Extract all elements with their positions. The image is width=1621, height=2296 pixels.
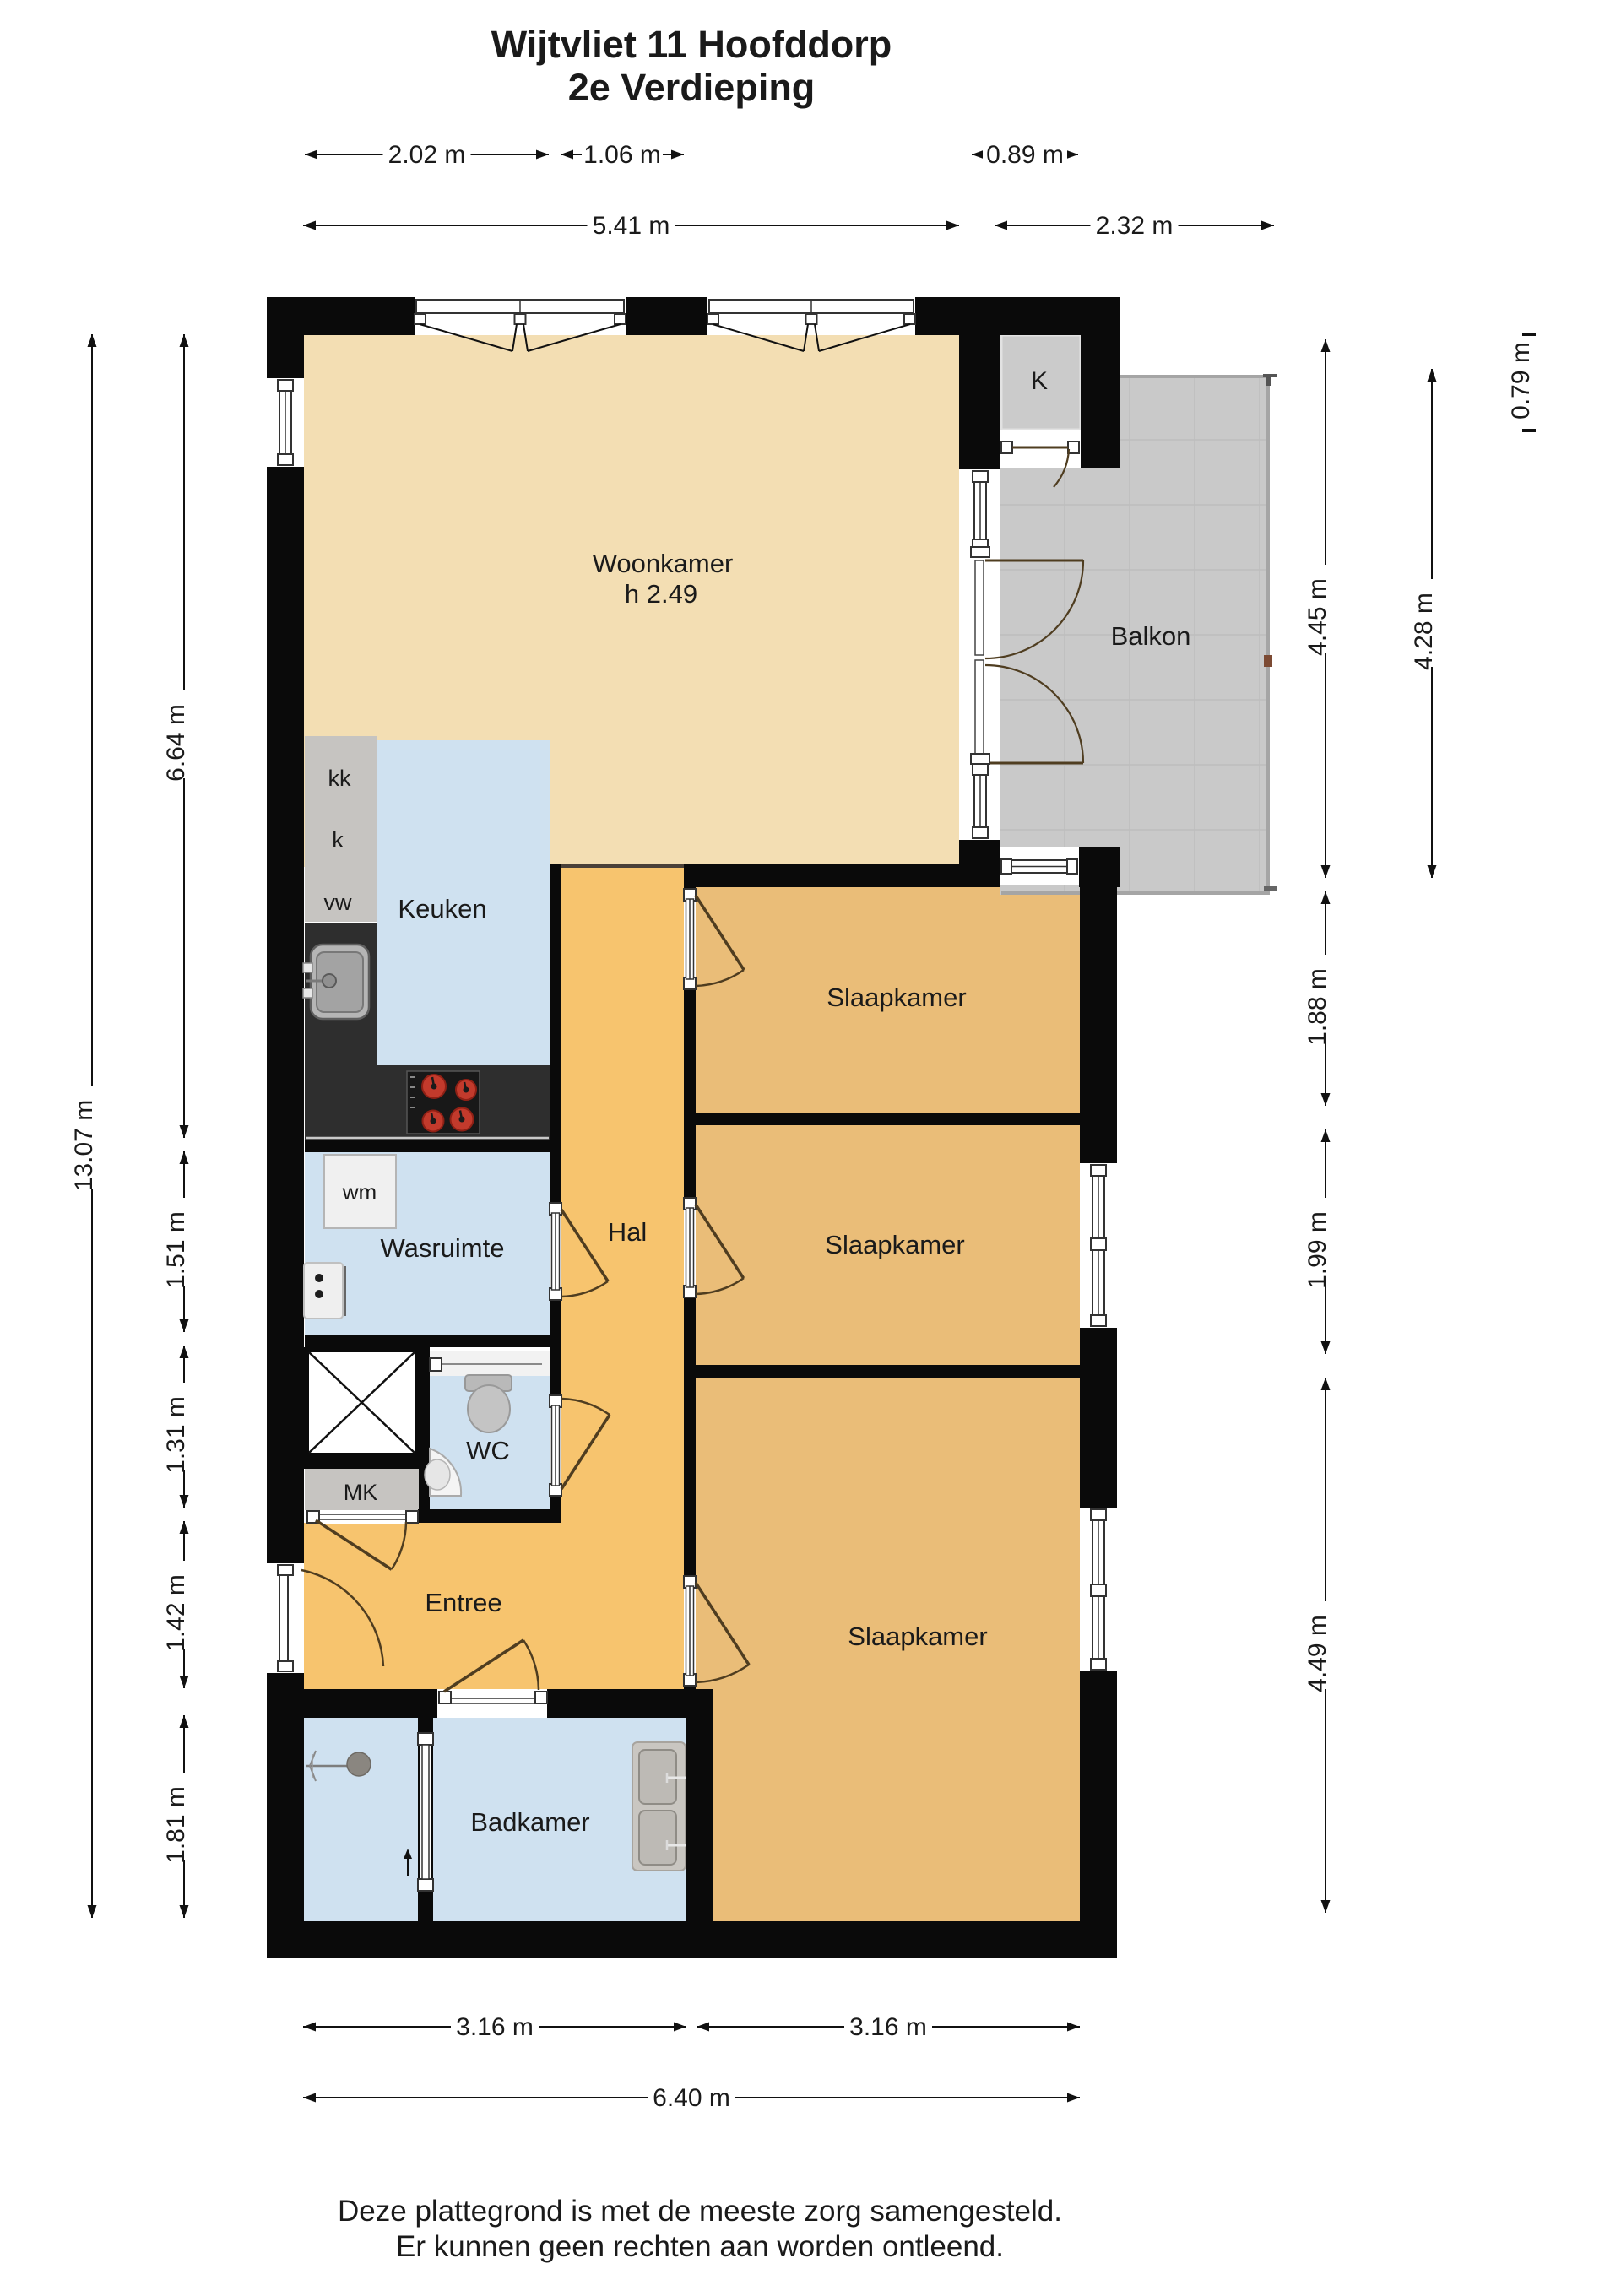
svg-text:wm: wm: [342, 1179, 377, 1205]
svg-text:0.79 m: 0.79 m: [1507, 342, 1535, 420]
svg-text:6.40 m: 6.40 m: [653, 2084, 730, 2112]
svg-text:K: K: [1031, 367, 1048, 395]
svg-text:1.81 m: 1.81 m: [162, 1786, 190, 1864]
svg-text:Woonkamer: Woonkamer: [593, 549, 734, 578]
svg-text:4.45 m: 4.45 m: [1304, 578, 1331, 656]
svg-text:4.49 m: 4.49 m: [1304, 1615, 1331, 1692]
svg-text:Badkamer: Badkamer: [470, 1807, 589, 1837]
svg-text:3.16 m: 3.16 m: [849, 2013, 927, 2041]
svg-text:Slaapkamer: Slaapkamer: [825, 1230, 964, 1259]
svg-text:vw: vw: [324, 890, 353, 915]
svg-text:1.99 m: 1.99 m: [1304, 1211, 1331, 1289]
svg-text:MK: MK: [344, 1480, 378, 1505]
svg-text:5.41 m: 5.41 m: [593, 212, 670, 240]
svg-text:1.06 m: 1.06 m: [583, 141, 661, 169]
svg-text:0.89 m: 0.89 m: [986, 141, 1064, 169]
svg-text:1.42 m: 1.42 m: [162, 1574, 190, 1652]
svg-text:1.31 m: 1.31 m: [162, 1396, 190, 1474]
svg-text:Wasruimte: Wasruimte: [381, 1233, 505, 1263]
svg-text:Keuken: Keuken: [398, 894, 486, 923]
svg-text:Entree: Entree: [425, 1588, 501, 1617]
svg-text:Hal: Hal: [608, 1217, 648, 1247]
svg-text:Slaapkamer: Slaapkamer: [848, 1622, 987, 1651]
svg-text:13.07 m: 13.07 m: [70, 1100, 98, 1191]
svg-text:2.02 m: 2.02 m: [388, 141, 466, 169]
svg-text:Balkon: Balkon: [1111, 621, 1191, 651]
svg-text:3.16 m: 3.16 m: [456, 2013, 534, 2041]
svg-text:1.51 m: 1.51 m: [162, 1211, 190, 1289]
svg-text:1.88 m: 1.88 m: [1304, 968, 1331, 1046]
svg-text:Er kunnen geen rechten aan wor: Er kunnen geen rechten aan worden ontlee…: [396, 2230, 1004, 2263]
svg-text:Deze plattegrond is met de mee: Deze plattegrond is met de meeste zorg s…: [338, 2195, 1062, 2228]
svg-text:4.28 m: 4.28 m: [1410, 593, 1438, 670]
svg-text:h 2.49: h 2.49: [625, 579, 697, 609]
svg-text:2.32 m: 2.32 m: [1096, 212, 1174, 240]
svg-text:Slaapkamer: Slaapkamer: [827, 983, 966, 1012]
svg-text:k: k: [332, 827, 344, 853]
svg-text:kk: kk: [328, 766, 352, 791]
svg-text:2e Verdieping: 2e Verdieping: [568, 66, 816, 109]
svg-text:6.64 m: 6.64 m: [162, 704, 190, 782]
svg-text:WC: WC: [466, 1436, 510, 1465]
svg-text:Wijtvliet 11 Hoofddorp: Wijtvliet 11 Hoofddorp: [491, 23, 892, 66]
